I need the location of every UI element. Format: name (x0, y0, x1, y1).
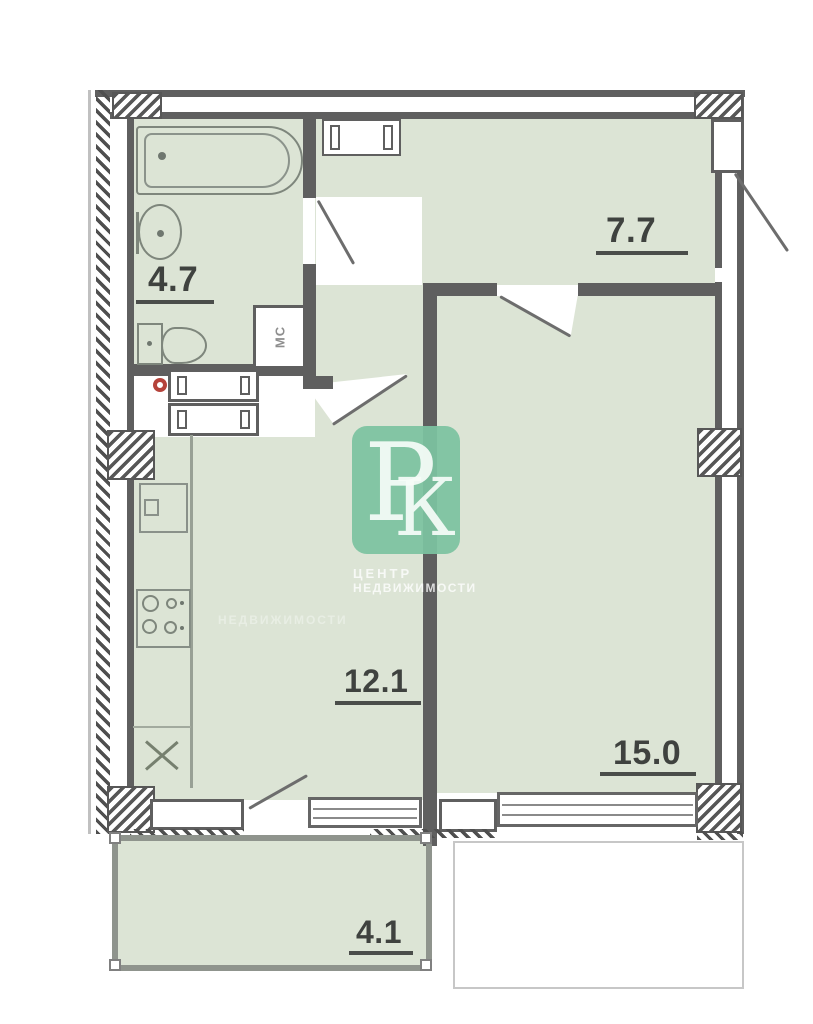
hallway-cabinet-right-cap (383, 125, 393, 150)
bathroom-sink-drain (157, 230, 164, 237)
stove-knob-2 (180, 626, 184, 630)
hallway-cabinet-left-cap (330, 125, 340, 150)
kitchen-area-label: 12.1 (344, 665, 408, 697)
living-room-area-label: 15.0 (613, 736, 681, 770)
column-right-middle (697, 428, 742, 477)
stove-burner-1 (142, 595, 159, 612)
bathroom-area-underline (136, 300, 214, 304)
washing-machine-lower (168, 403, 259, 436)
living-room-window (497, 792, 698, 827)
balcony-corner-post-tr (420, 832, 432, 844)
column-top-left (112, 92, 162, 119)
watermark-caption-line2: НЕДВИЖИМОСТИ (353, 581, 477, 595)
balcony-corner-post-bl (109, 959, 121, 971)
utility-point-marker (153, 378, 167, 392)
drawing-edge-line (88, 90, 91, 834)
window-spandrel (439, 799, 497, 832)
watermark-letter-k: К (394, 468, 456, 548)
balcony-corner-post-br (420, 959, 432, 971)
washing-machine-upper-right-cap (240, 376, 250, 395)
balcony-door-sidelight (150, 799, 244, 830)
hallway-area-label: 7.7 (606, 213, 656, 248)
column-top-right (694, 92, 743, 119)
neighbor-outline (453, 841, 744, 989)
balcony-corner-post-tl (109, 832, 121, 844)
kitchen-door-stub (303, 376, 333, 389)
stove-burner-2 (166, 598, 177, 609)
watermark-caption-faint: НЕДВИЖИМОСТИ (218, 613, 348, 627)
balcony-area-underline (349, 951, 413, 955)
hallway-area-underline (596, 251, 688, 255)
bathroom-right-wall-upper (303, 112, 316, 198)
living-window-mullion (502, 804, 693, 806)
living-room-floor (437, 296, 715, 793)
washing-machine-upper-left-cap (177, 376, 187, 395)
bathroom-sink-edge (136, 212, 139, 254)
kitchen-area-underline (335, 701, 421, 705)
watermark-caption-line1: ЦЕНТР (353, 566, 412, 581)
refrigerator-handle (144, 499, 159, 516)
column-left-bottom (107, 786, 155, 833)
column-right-bottom (696, 783, 742, 833)
kitchen-counter-divider (133, 726, 191, 728)
living-room-area-underline (600, 772, 696, 776)
kitchen-window-mullion (313, 808, 417, 810)
column-left-middle (107, 430, 155, 480)
wall-right-junction-gap (715, 268, 722, 282)
washing-machine-lower-right-cap (240, 410, 250, 429)
washing-machine-upper (168, 369, 259, 402)
hallway-living-wall-right (578, 283, 717, 296)
wall-top-outer (95, 90, 745, 97)
corridor-door-zone (316, 197, 422, 285)
washing-machine-lower-left-cap (177, 410, 187, 429)
washer-closet-label: МС (272, 326, 287, 348)
stove-knob-1 (180, 601, 184, 605)
stove-burner-4 (164, 621, 177, 634)
living-window-mullion2 (502, 814, 693, 816)
bathtub-faucet (158, 152, 166, 160)
bathroom-area-label: 4.7 (148, 262, 198, 297)
hallway-cabinet (322, 119, 401, 156)
washer-closet-box: МС (253, 305, 306, 369)
balcony-area-label: 4.1 (356, 916, 402, 948)
kitchen-window (308, 797, 422, 828)
bathtub-inner (144, 133, 290, 188)
insulation-bottom-right (697, 831, 743, 840)
entrance-door-jamb (711, 119, 744, 173)
toilet-tank-button (147, 341, 152, 346)
floor-plan: МС 4.7 7.7 12.1 15.0 4.1 Р К ЦЕНТР НЕДВИ… (0, 0, 813, 1024)
stove-burner-3 (142, 619, 157, 634)
kitchen-window-mullion2 (313, 817, 417, 819)
wall-top-inner (110, 112, 717, 119)
